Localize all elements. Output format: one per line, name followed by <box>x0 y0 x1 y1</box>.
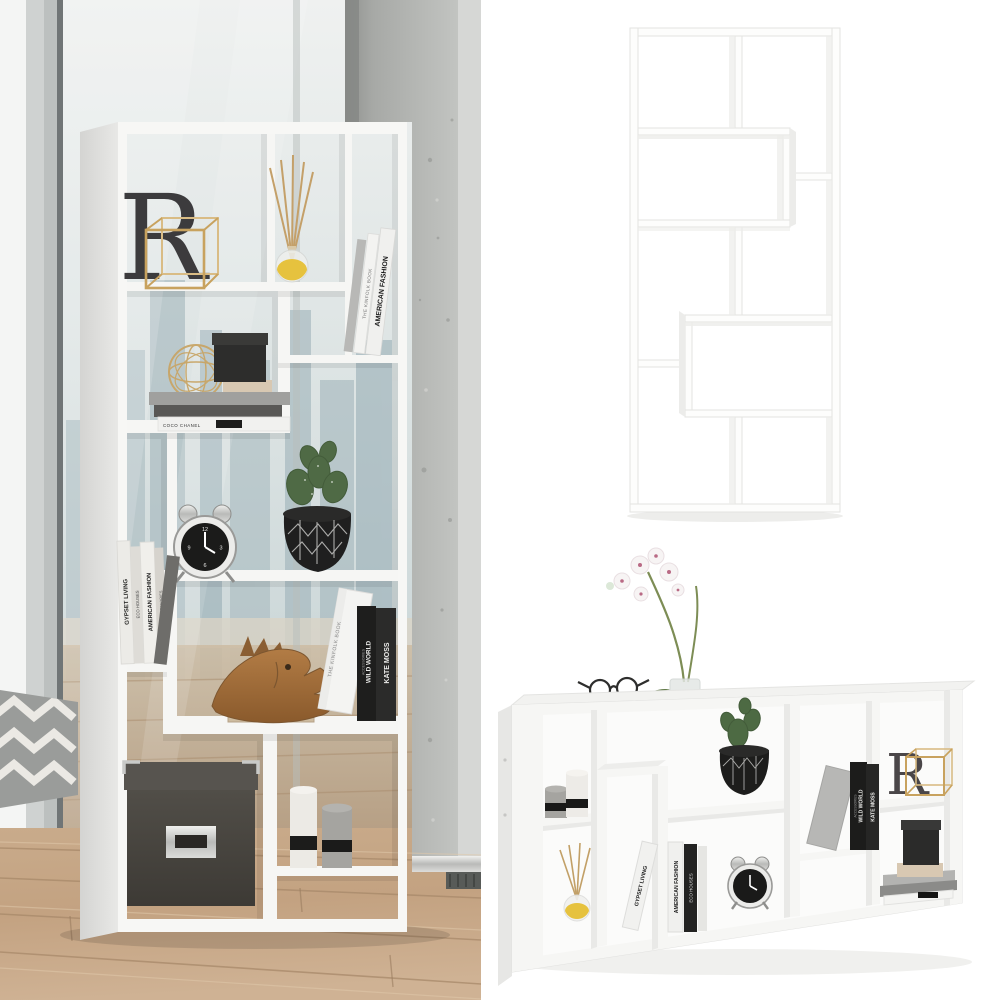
svg-text:KATE MOSS: KATE MOSS <box>384 642 391 683</box>
alarm-clock: 12 3 6 9 <box>174 505 236 582</box>
svg-text:3: 3 <box>219 546 222 552</box>
back-wall <box>458 0 481 1000</box>
svg-text:AMERICAN FASHION: AMERICAN FASHION <box>674 861 680 914</box>
svg-text:WILD WORLD: WILD WORLD <box>366 641 373 684</box>
floor-grate <box>446 872 481 889</box>
svg-text:COCO CHANEL: COCO CHANEL <box>163 423 201 428</box>
lifestyle-photo: R THE K <box>0 0 481 1000</box>
letter-r-decor: R <box>118 169 210 307</box>
render-shading <box>638 36 832 504</box>
chevron-rug <box>0 690 78 808</box>
svg-text:9: 9 <box>187 546 190 552</box>
storage-box <box>124 762 258 906</box>
h-standing-books: AMERICAN FASHION ECO HOUSES <box>668 842 707 932</box>
svg-text:KATE MOSS: KATE MOSS <box>871 792 877 822</box>
baseboard <box>412 856 481 872</box>
shelf-side-panel <box>80 122 118 940</box>
product-render-horizontal: LISA CHANEY COCO CHANEL THE LITTLE BLACK… <box>498 548 974 986</box>
h-alarm-clock <box>728 857 772 909</box>
svg-text:ECO HOUSES: ECO HOUSES <box>689 873 694 902</box>
svg-text:WILD WORLD: WILD WORLD <box>859 789 865 822</box>
horizontal-side-panel <box>498 705 512 986</box>
book-stack-box1: COCO CHANEL <box>149 392 290 431</box>
svg-text:ACCESSORIES: ACCESSORIES <box>854 794 858 817</box>
black-books-pair: ACCESSORIES WILD WORLD KATE MOSS <box>357 606 396 721</box>
h-letter-r: R <box>886 743 930 808</box>
collage-svg: R THE K <box>0 0 1000 1000</box>
product-collage: R THE K <box>0 0 1000 1000</box>
svg-text:ECO HOUSES: ECO HOUSES <box>135 590 141 618</box>
svg-text:6: 6 <box>203 563 206 569</box>
product-render-front <box>627 28 843 522</box>
